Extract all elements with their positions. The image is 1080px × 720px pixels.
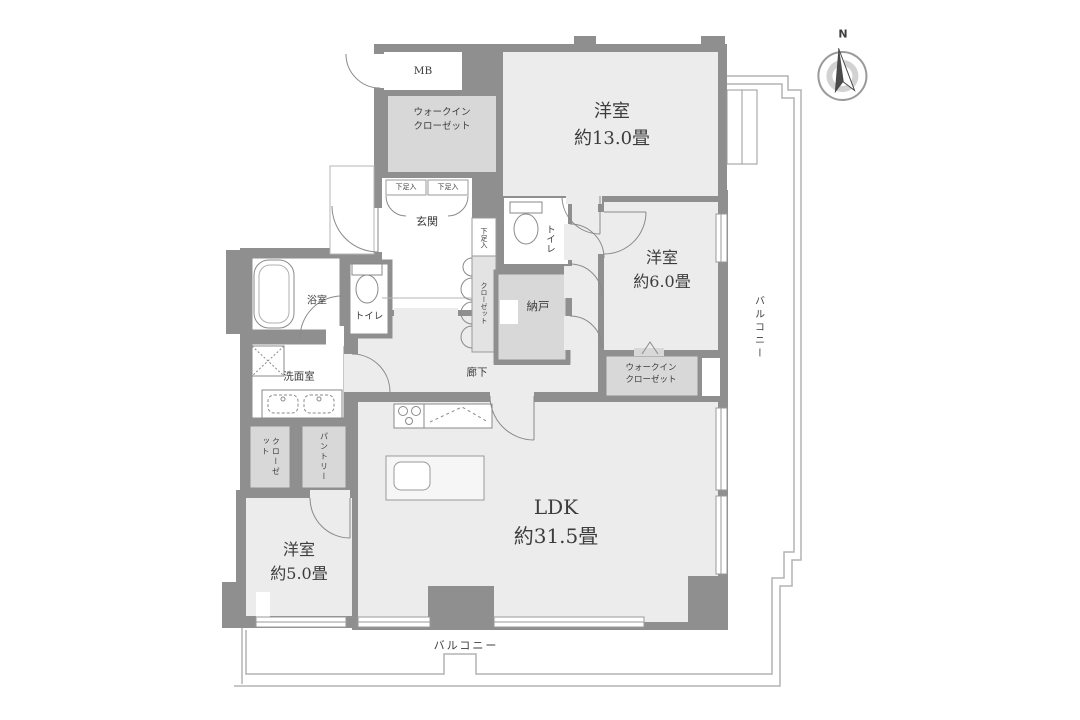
bedroom-north-size: 約13.0畳 <box>574 125 650 152</box>
kitchen-counter-icon <box>424 404 492 428</box>
kitchen-sink-icon <box>394 462 430 490</box>
walk-in-closet-north-line1: ウォークイン <box>413 106 470 120</box>
bedroom-east-label: 洋室 約6.0畳 <box>633 246 690 294</box>
bedroom-east-size: 約6.0畳 <box>633 270 690 294</box>
walk-in-closet-north-line2: クローゼット <box>413 120 470 134</box>
shoe-cabinet-right-label: 下足入 <box>438 182 459 192</box>
bedroom-north-name: 洋室 <box>574 98 650 125</box>
walk-in-closet-east-line1: ウォークイン <box>625 363 676 375</box>
bedroom-west-label: 洋室 約5.0畳 <box>270 538 327 586</box>
walk-in-closet-north-label: ウォークイン クローゼット <box>413 106 470 134</box>
entry-porch <box>330 166 374 254</box>
corridor-label: 廊下 <box>467 365 488 380</box>
balcony-east-label: バルコニー <box>751 296 766 361</box>
corner-niche <box>256 592 270 620</box>
ldk-name: LDK <box>514 493 599 522</box>
pantry-label: パントリー <box>319 432 330 482</box>
ldk-label: LDK 約31.5畳 <box>514 493 599 551</box>
closet-entrance-label: クローゼット <box>479 282 489 324</box>
shoe-cabinet-left-label: 下足入 <box>396 182 417 192</box>
balcony-south-label: バルコニー <box>434 637 499 653</box>
bathtub-icon <box>254 260 294 328</box>
walk-in-closet-east-niche <box>702 358 720 396</box>
compass-north-label: N <box>838 28 847 41</box>
washroom-label: 洗面室 <box>283 369 315 384</box>
floor-plan: MB ウォークイン クローゼット 洋室 約13.0畳 下足入 下足入 玄関 下足… <box>0 0 1080 720</box>
compass-icon <box>815 45 870 103</box>
bedroom-west-name: 洋室 <box>270 538 327 562</box>
shoe-cabinet-side-label: 下足入 <box>479 228 489 249</box>
meter-box-label: MB <box>414 65 432 77</box>
entrance-floor <box>382 178 472 310</box>
walk-in-closet-east-line2: クローゼット <box>625 375 676 387</box>
closet-west-label: クローゼット <box>260 437 281 477</box>
bedroom-east-name: 洋室 <box>633 246 690 270</box>
walk-in-closet-east-label: ウォークイン クローゼット <box>625 363 676 387</box>
ldk-size: 約31.5畳 <box>514 522 599 551</box>
bedroom-north-label: 洋室 約13.0畳 <box>574 98 650 152</box>
floorplan-drawing <box>0 0 1080 720</box>
toilet-west-label: トイレ <box>355 308 384 322</box>
entrance-label: 玄関 <box>416 213 438 229</box>
toilet-north-label: トイレ <box>542 225 556 254</box>
toilet-west-icon <box>352 264 382 275</box>
bedroom-west-size: 約5.0畳 <box>270 562 327 586</box>
storage-room-label: 納戸 <box>527 298 550 314</box>
storage-room-niche <box>500 300 518 324</box>
toilet-north-icon <box>510 202 542 213</box>
bathroom-label: 浴室 <box>307 292 327 307</box>
